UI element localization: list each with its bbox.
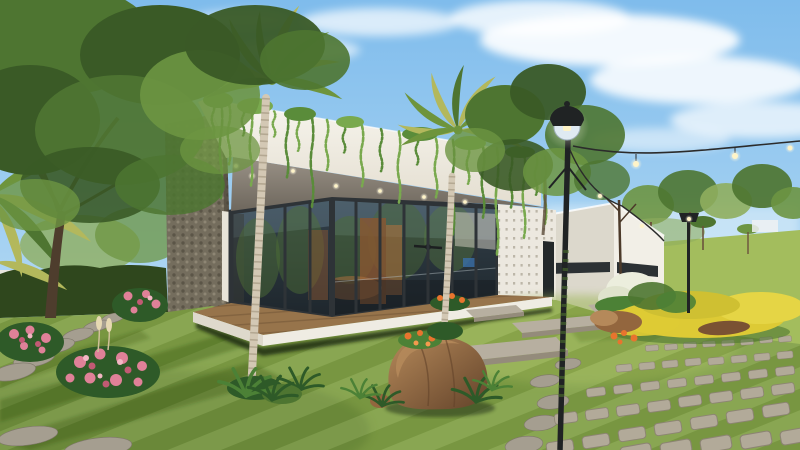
glass-curtain-wall-left: [231, 198, 332, 318]
tv-reflection: [463, 258, 475, 267]
render-canvas: [0, 0, 800, 450]
doorway: [543, 241, 554, 297]
architectural-render: [0, 0, 800, 450]
annex-window-strip: [549, 262, 610, 274]
distant-white-fence: [752, 220, 778, 232]
breeze-block-wall: [498, 204, 556, 300]
